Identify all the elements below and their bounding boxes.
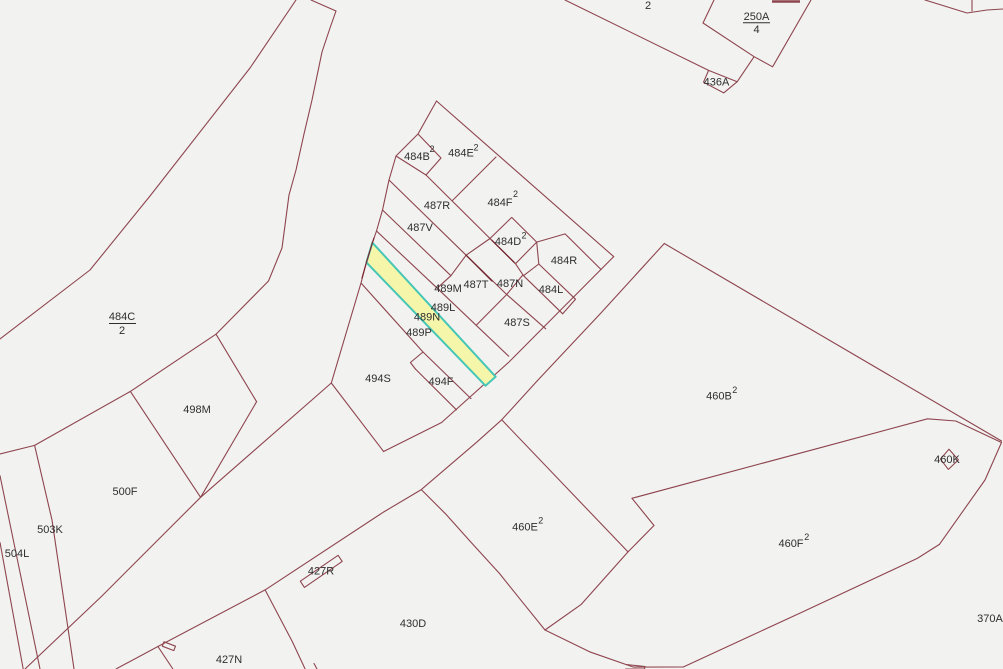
svg-text:498M: 498M	[183, 404, 211, 416]
svg-text:484B: 484B	[404, 151, 430, 163]
svg-text:489M: 489M	[434, 283, 462, 295]
svg-text:484D: 484D	[495, 236, 521, 248]
svg-text:460E: 460E	[512, 522, 538, 534]
svg-text:436A: 436A	[704, 77, 730, 89]
svg-text:2: 2	[513, 189, 518, 199]
svg-text:427N: 427N	[216, 654, 242, 666]
svg-text:487S: 487S	[504, 317, 530, 329]
svg-text:370A: 370A	[977, 613, 1003, 625]
svg-text:504L: 504L	[5, 548, 29, 560]
svg-text:487N: 487N	[497, 278, 523, 290]
svg-text:500F: 500F	[112, 486, 137, 498]
svg-text:487R: 487R	[424, 200, 450, 212]
svg-text:484F: 484F	[487, 197, 512, 209]
svg-text:489P: 489P	[406, 327, 432, 339]
svg-text:489N: 489N	[414, 312, 440, 324]
svg-text:2: 2	[645, 0, 651, 12]
svg-text:2: 2	[119, 325, 125, 337]
svg-text:427R: 427R	[308, 566, 334, 578]
svg-text:460F: 460F	[778, 538, 803, 550]
svg-text:460K: 460K	[934, 454, 960, 466]
svg-text:430D: 430D	[400, 618, 426, 630]
svg-text:494F: 494F	[428, 376, 453, 388]
svg-text:487V: 487V	[407, 222, 433, 234]
svg-text:4: 4	[753, 24, 759, 36]
svg-text:2: 2	[538, 516, 543, 526]
svg-text:484L: 484L	[539, 284, 563, 296]
svg-text:494S: 494S	[365, 373, 391, 385]
svg-text:2: 2	[804, 532, 809, 542]
svg-text:484E: 484E	[448, 148, 474, 160]
svg-text:2: 2	[430, 144, 435, 154]
svg-text:484C: 484C	[109, 311, 135, 323]
svg-text:503K: 503K	[37, 524, 63, 536]
svg-text:2: 2	[522, 231, 527, 241]
svg-text:2: 2	[732, 385, 737, 395]
svg-text:250A: 250A	[744, 11, 770, 23]
svg-text:460B: 460B	[706, 391, 732, 403]
svg-text:487T: 487T	[463, 279, 488, 291]
svg-text:2: 2	[474, 143, 479, 153]
svg-text:484R: 484R	[551, 255, 577, 267]
